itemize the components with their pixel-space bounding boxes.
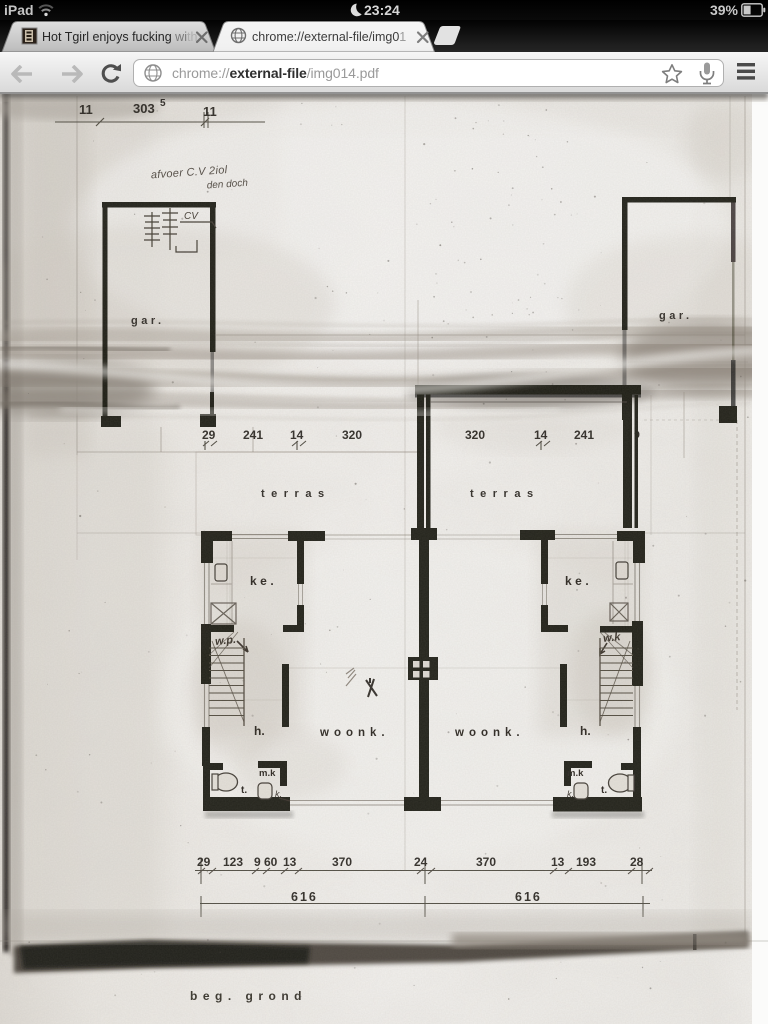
svg-text:Hot Tgirl enjoys fucking with: Hot Tgirl enjoys fucking with (42, 30, 197, 44)
svg-text:chrome://external-file/img01: chrome://external-file/img01 (252, 30, 406, 44)
